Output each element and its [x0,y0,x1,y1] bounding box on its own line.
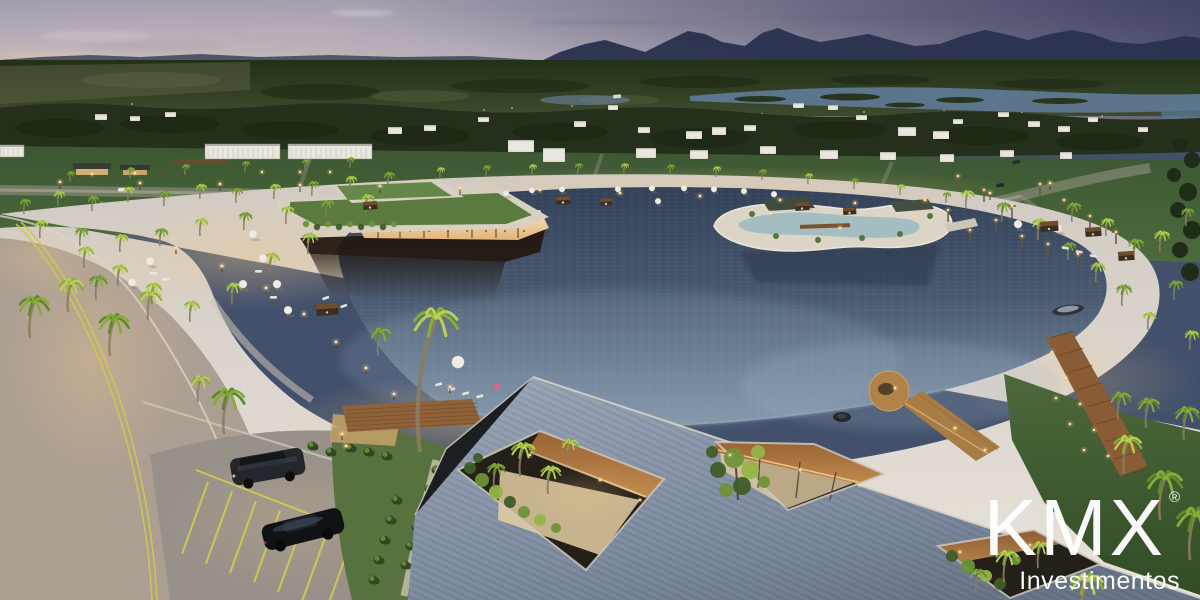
kmx-logo-subtitle: Investimentos [984,569,1180,594]
resort-rendering-canvas: KMX ® Investimentos [0,0,1200,600]
registered-trademark-icon: ® [1169,490,1180,505]
kmx-logo: KMX ® Investimentos [984,488,1180,600]
kmx-logo-text: KMX [984,488,1166,568]
